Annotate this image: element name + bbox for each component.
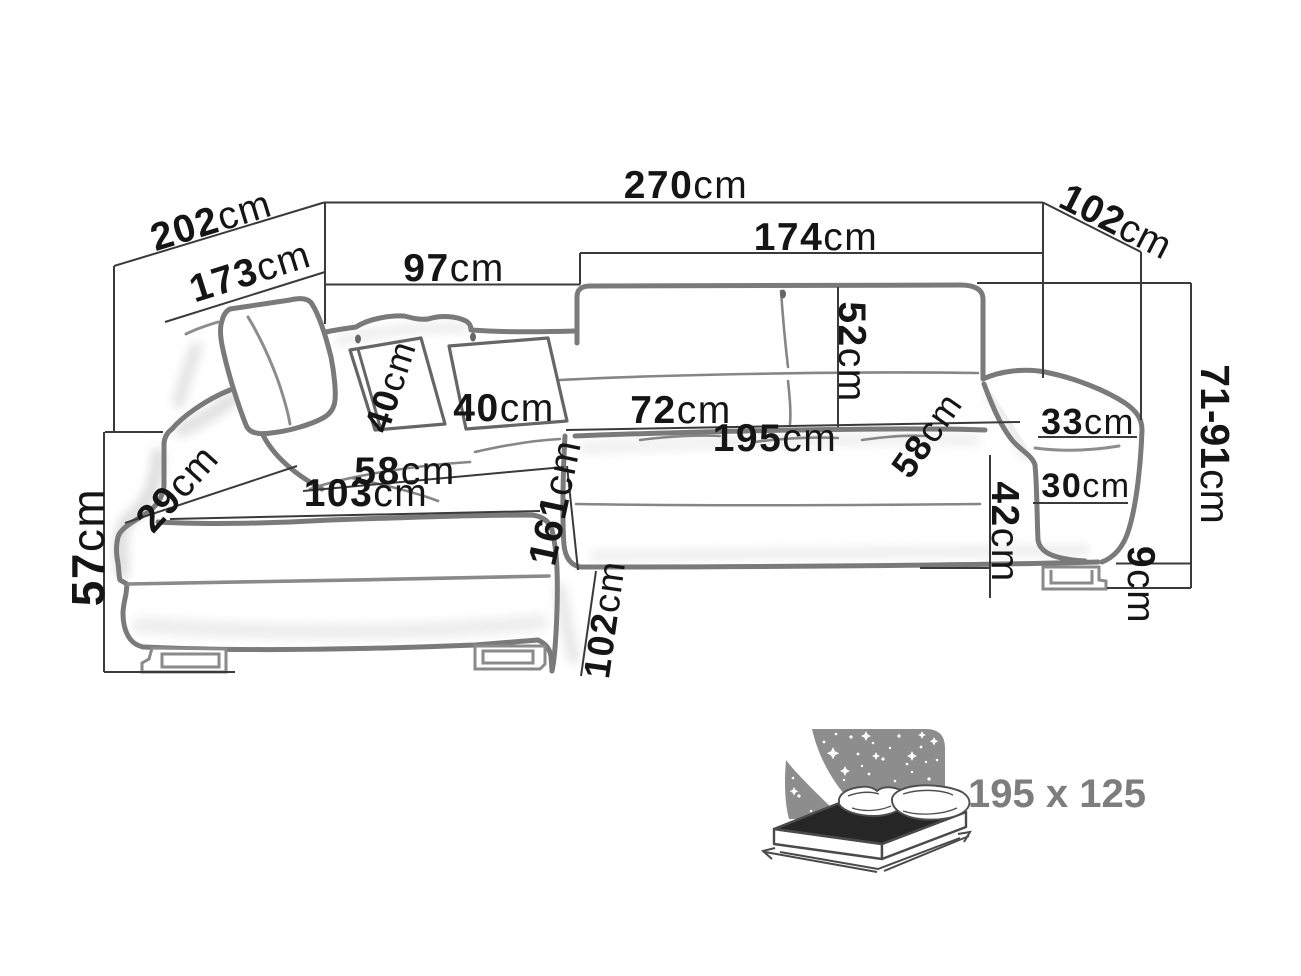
- svg-text:71-91cm: 71-91cm: [1192, 364, 1238, 524]
- svg-text:33cm: 33cm: [1041, 401, 1135, 442]
- svg-text:52cm: 52cm: [830, 301, 873, 402]
- svg-text:195 x 125: 195 x 125: [968, 772, 1146, 816]
- svg-text:40cm: 40cm: [453, 387, 554, 430]
- svg-text:174cm: 174cm: [754, 216, 879, 259]
- svg-text:57cm: 57cm: [62, 488, 114, 607]
- svg-text:30cm: 30cm: [1041, 467, 1130, 505]
- svg-text:97cm: 97cm: [403, 247, 504, 290]
- svg-text:42cm: 42cm: [983, 481, 1026, 582]
- svg-text:58cm: 58cm: [354, 450, 455, 493]
- svg-text:195cm: 195cm: [713, 417, 838, 460]
- svg-text:270cm: 270cm: [624, 164, 749, 207]
- svg-text:9cm: 9cm: [1119, 546, 1162, 624]
